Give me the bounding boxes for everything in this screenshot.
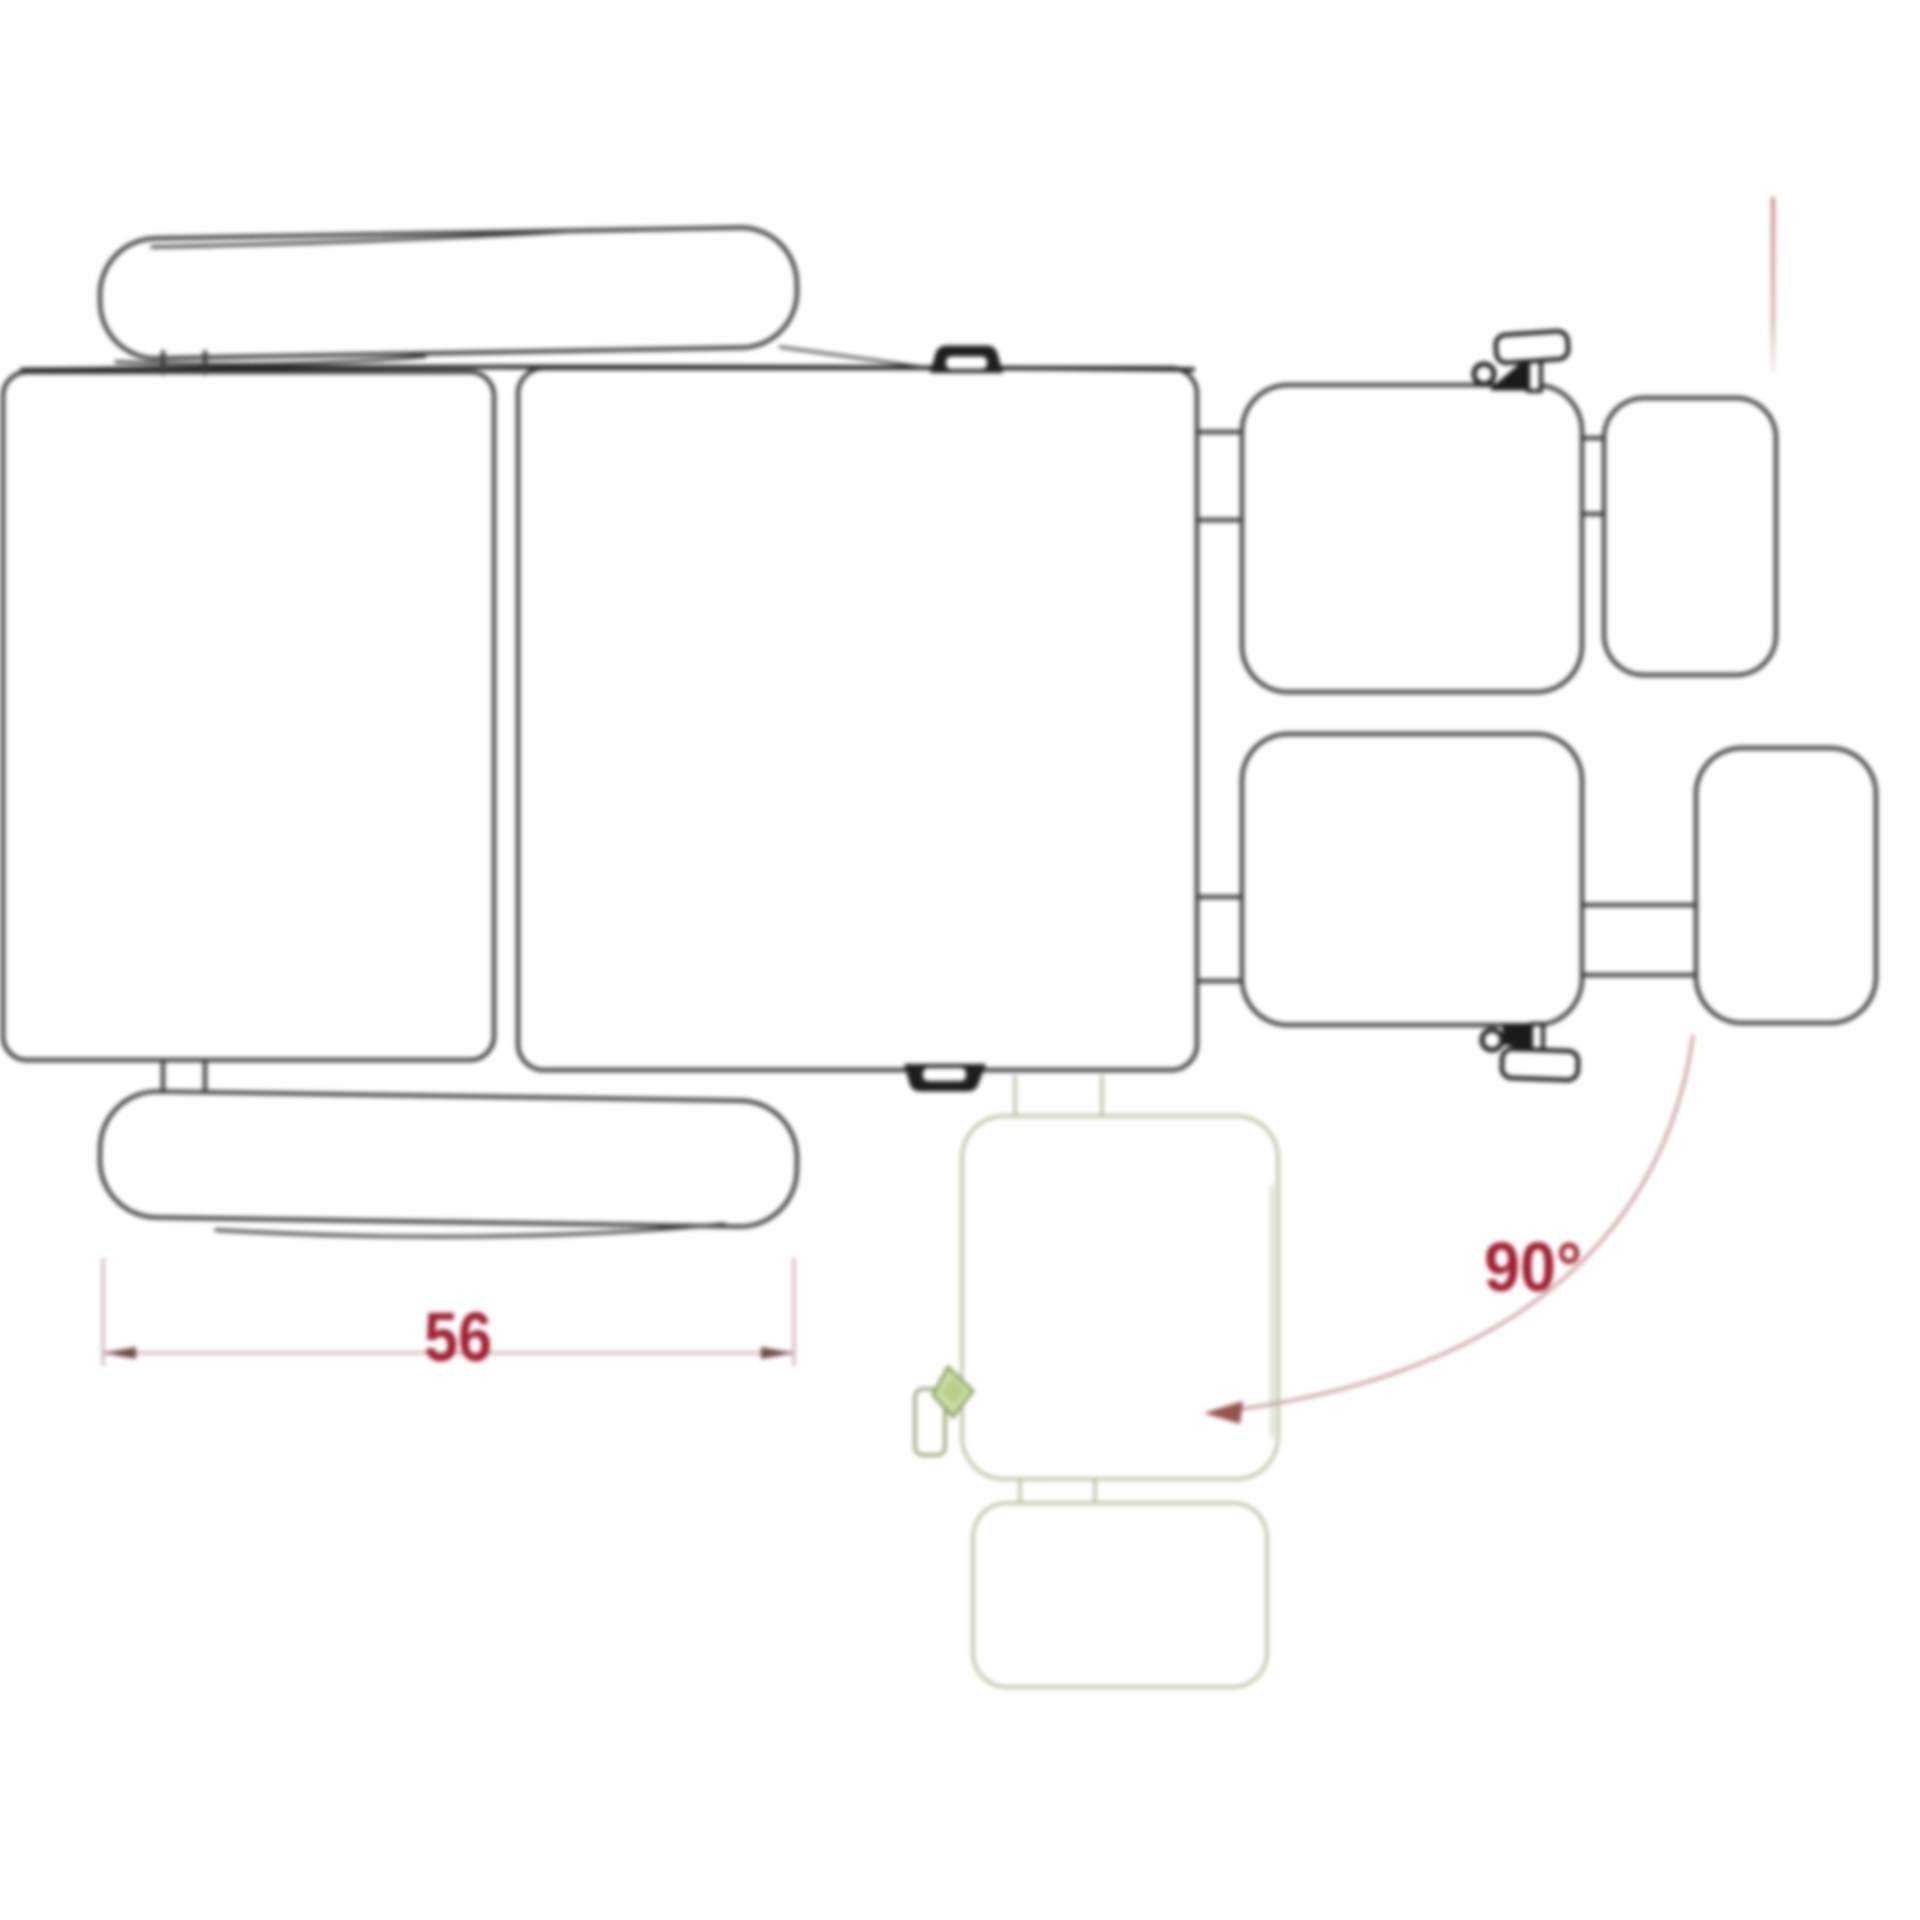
svg-text:56: 56: [424, 1298, 492, 1376]
svg-text:90°: 90°: [1484, 1228, 1582, 1306]
